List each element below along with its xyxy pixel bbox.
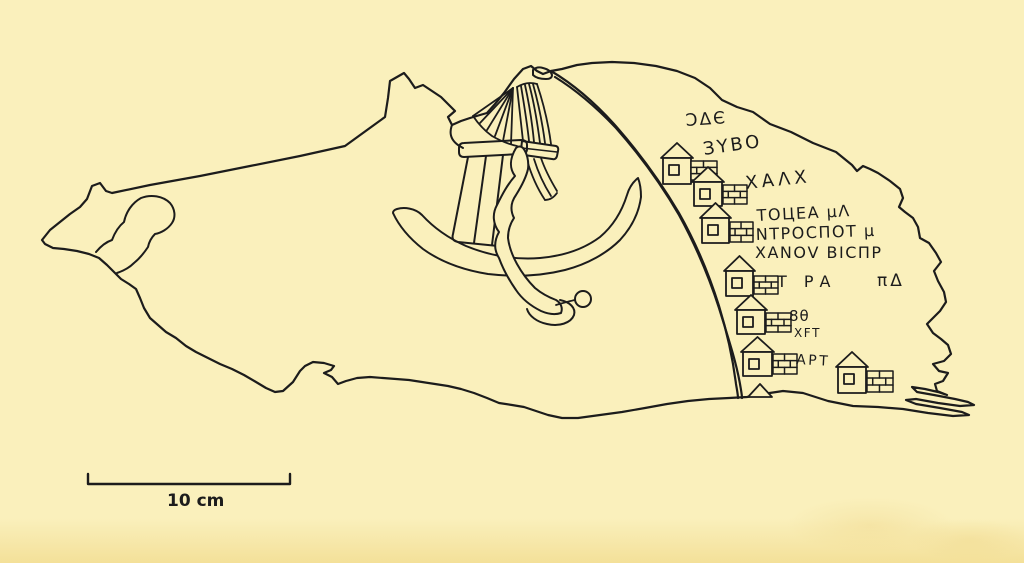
brick-block	[723, 185, 747, 204]
inscription: πΔ	[877, 271, 905, 291]
inscription: ЗΥΒΟ	[702, 131, 763, 160]
scale-bar-label: 10 cm	[167, 491, 224, 511]
house-body	[726, 271, 753, 296]
serpent-tail-loop	[575, 291, 591, 307]
inscription: 8θ	[789, 307, 810, 325]
house-body	[737, 310, 765, 334]
inscription: ΧFΤ	[794, 326, 821, 340]
central-motif	[393, 67, 641, 325]
inscription: ΑΡΤ	[796, 352, 831, 370]
inscription: ΧΑΝΟV ΒΙCΠΡ	[755, 243, 883, 262]
settlement	[700, 203, 753, 243]
inscription: Τ ΡΑ	[776, 272, 836, 291]
tent-fan	[473, 88, 517, 146]
house-body	[702, 218, 729, 243]
inscription: ƆΔЄ	[685, 108, 728, 131]
map-fragment-drawing: ƆΔЄЗΥΒΟΧΑΛΧΤΟЦΕΑ μΛΝΤΡΟCΠΟΤ μΧΑΝΟV ΒΙCΠΡ…	[0, 0, 1024, 563]
house-roof	[661, 143, 693, 158]
basket-stripe	[474, 156, 486, 243]
pleated-band	[517, 83, 551, 144]
settlement	[836, 352, 893, 393]
lone-roof	[748, 384, 772, 397]
house-roof	[724, 256, 755, 271]
house-body	[694, 182, 722, 206]
house-body	[838, 367, 866, 393]
house-roof	[836, 352, 868, 367]
scale-bar-line	[88, 474, 290, 484]
interior-knob-line	[96, 196, 174, 273]
brick-block	[773, 354, 797, 374]
settlement	[724, 256, 778, 296]
brick-block	[754, 276, 778, 294]
house-body	[663, 158, 691, 184]
serpent-band	[494, 147, 562, 315]
figure-canvas: ƆΔЄЗΥΒΟΧΑΛΧΤΟЦΕΑ μΛΝΤΡΟCΠΟΤ μΧΑΝΟV ΒΙCΠΡ…	[0, 0, 1024, 563]
inscription: ΧΑΛΧ	[744, 166, 811, 194]
lower-band	[527, 158, 557, 200]
inscription: ΝΤΡΟCΠΟΤ μ	[755, 221, 875, 244]
settlement	[741, 337, 797, 376]
brick-block	[867, 371, 893, 392]
brick-block	[730, 222, 753, 242]
house-roof	[741, 337, 774, 352]
scale-bar: 10 cm	[88, 474, 290, 511]
brick-block	[766, 313, 791, 332]
house-roof	[735, 295, 767, 310]
house-body	[743, 352, 772, 376]
settlement	[735, 295, 791, 334]
